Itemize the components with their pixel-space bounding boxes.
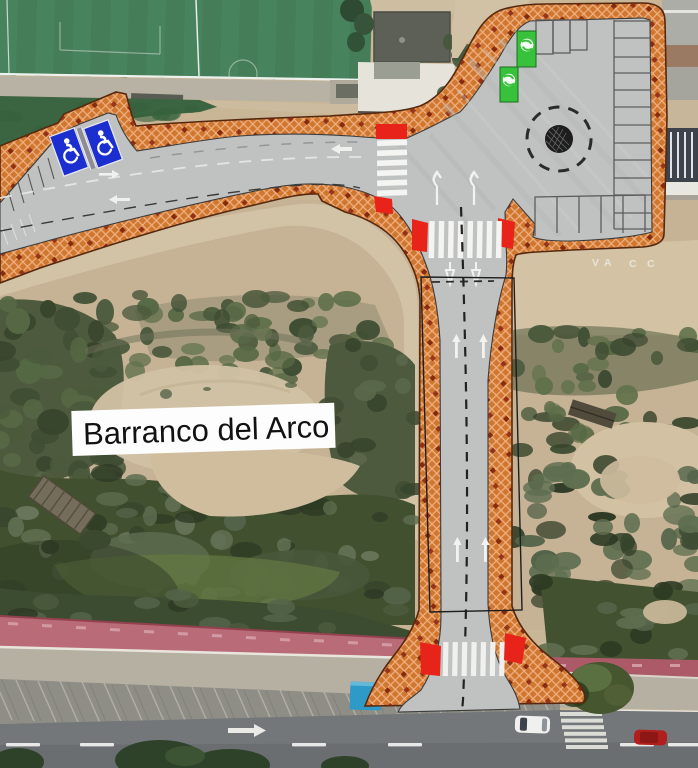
svg-text:C: C [629,258,637,270]
svg-text:A: A [604,257,612,269]
svg-text:C: C [647,258,655,270]
svg-text:V: V [592,257,599,269]
